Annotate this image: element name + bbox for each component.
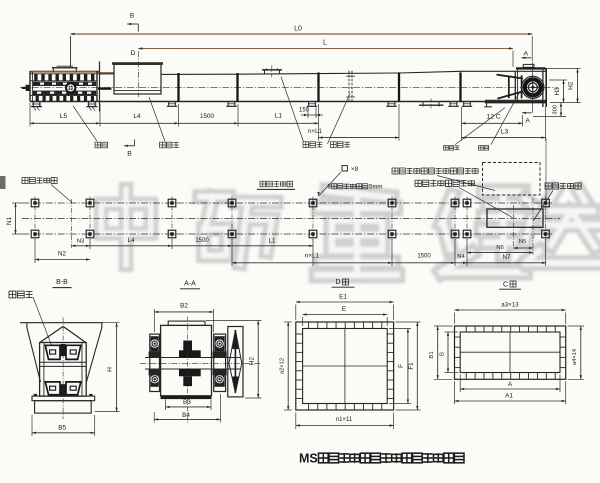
svg-text:L3: L3 (501, 129, 509, 136)
svg-text:D: D (335, 279, 340, 286)
svg-text:B: B (130, 13, 135, 20)
svg-text:B5: B5 (58, 425, 66, 432)
svg-text:N1: N1 (6, 216, 13, 224)
svg-text:1500: 1500 (200, 113, 215, 120)
svg-text:B4: B4 (182, 412, 190, 419)
svg-text:L0: L0 (294, 26, 302, 33)
svg-text:C: C (503, 281, 508, 288)
svg-text:H3: H3 (554, 87, 561, 95)
svg-text:L5: L5 (60, 113, 68, 120)
svg-text:n×L1: n×L1 (308, 128, 322, 135)
svg-text:300: 300 (552, 105, 558, 115)
svg-text:B: B (440, 352, 446, 356)
svg-text:B3: B3 (183, 399, 191, 406)
svg-text:B2: B2 (180, 302, 188, 309)
svg-text:N6: N6 (496, 245, 504, 251)
svg-text:MS: MS (299, 452, 318, 466)
svg-text:L1: L1 (275, 112, 283, 119)
svg-text:B: B (127, 151, 132, 158)
svg-text:N2: N2 (58, 250, 66, 257)
svg-text:A-A: A-A (184, 281, 196, 288)
svg-text:A: A (508, 381, 513, 388)
svg-text:N7: N7 (503, 254, 511, 261)
svg-text:B1: B1 (429, 351, 435, 358)
svg-text:A1: A1 (505, 393, 513, 400)
svg-text:a2×12: a2×12 (279, 358, 285, 374)
svg-text:H2: H2 (248, 356, 255, 365)
svg-text:E: E (342, 306, 346, 313)
svg-text:N5: N5 (519, 239, 527, 245)
svg-text:a4×14: a4×14 (572, 349, 578, 365)
svg-text:L4: L4 (128, 237, 135, 244)
svg-text:A: A (525, 117, 530, 124)
svg-text:n×L1: n×L1 (305, 252, 319, 259)
svg-text:A: A (524, 51, 529, 58)
svg-text:×8: ×8 (351, 166, 359, 173)
svg-text:1500: 1500 (195, 238, 209, 244)
svg-text:D: D (131, 50, 136, 57)
svg-text:F: F (398, 364, 405, 368)
svg-text:F1: F1 (408, 362, 415, 370)
svg-text:L1: L1 (269, 238, 276, 245)
svg-text:1500: 1500 (417, 253, 431, 259)
svg-text:L4: L4 (133, 113, 141, 120)
svg-text:B-B: B-B (56, 279, 68, 286)
svg-text:n1×11: n1×11 (336, 417, 353, 423)
svg-text:E1: E1 (339, 294, 347, 301)
svg-text:H: H (107, 367, 114, 372)
svg-text:N4: N4 (457, 254, 465, 260)
svg-text:5mm: 5mm (369, 185, 382, 191)
svg-text:N3: N3 (77, 239, 85, 245)
svg-text:150: 150 (299, 107, 310, 113)
svg-text:H2: H2 (567, 81, 574, 90)
svg-text:a3×13: a3×13 (501, 301, 519, 308)
svg-text:L: L (323, 40, 327, 47)
